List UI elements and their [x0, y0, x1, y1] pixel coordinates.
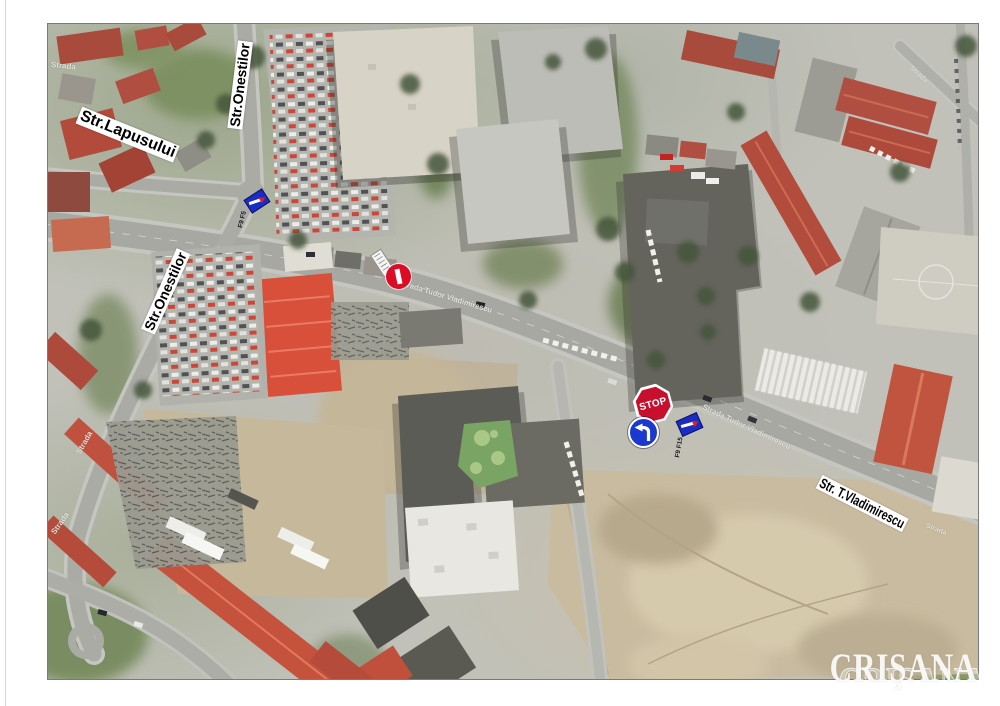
no-entry-bar — [394, 269, 402, 285]
aerial-imagery — [48, 24, 978, 679]
turn-left-arrow-icon — [630, 419, 657, 446]
scanned-map-page: { "street_labels": { "lapusului": { "tex… — [0, 0, 1000, 706]
page-edge-line — [5, 0, 6, 706]
turn-left-sign-icon — [628, 417, 659, 448]
watermark-crisana: CRIŞANA — [829, 644, 977, 691]
stop-sign-label: STOP — [638, 395, 668, 413]
aerial-map: Strada Tudor Vladimirescu Strada Tudor V… — [47, 23, 979, 680]
